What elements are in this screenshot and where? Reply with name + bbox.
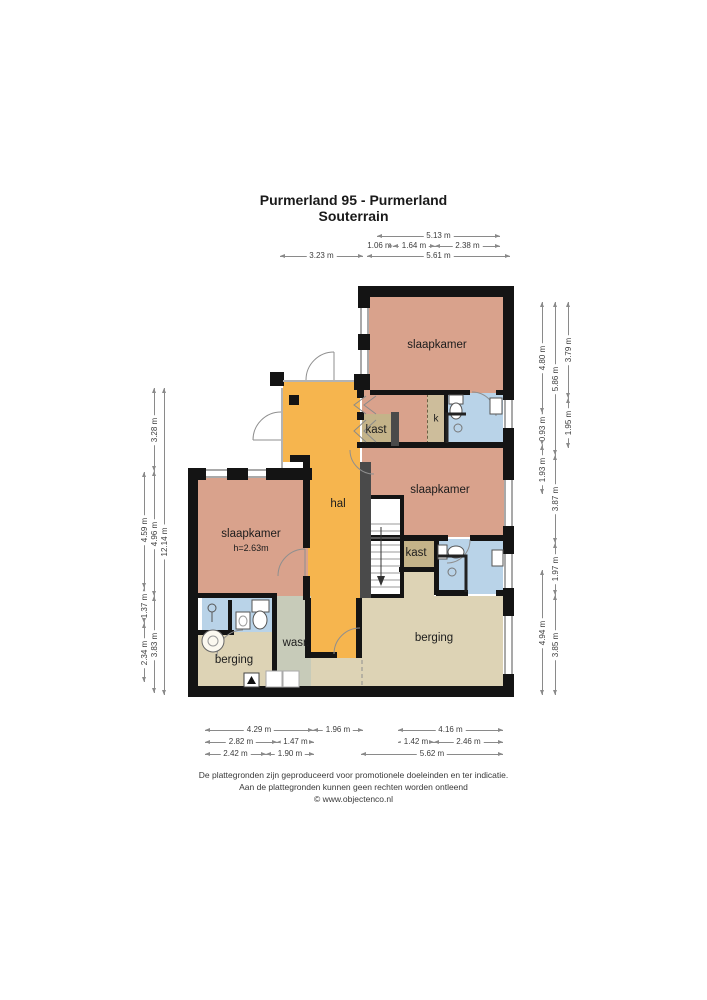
window	[206, 469, 227, 478]
dimension-label: 5.62 m	[417, 749, 447, 759]
dimension-line: 0.93 m	[542, 413, 543, 445]
dimension-line: 2.38 m	[435, 246, 500, 247]
dimension-label: 1.96 m	[323, 725, 353, 735]
dimension-label: 3.23 m	[306, 251, 336, 261]
dimension-label: 1.42 m	[401, 737, 431, 747]
room-label-hall: hal	[330, 498, 345, 510]
glass-wall	[283, 380, 354, 382]
wall-stairs	[371, 495, 404, 499]
wall-post	[354, 374, 370, 390]
dimension-label: 1.06 m	[364, 241, 394, 251]
dimension-line: 1.97 m	[555, 543, 556, 595]
floorplan-page: Purmerland 95 - Purmerland Souterrain	[0, 0, 707, 1000]
dimension-line: 1.42 m	[398, 742, 434, 743]
dimension-label: 5.13 m	[423, 231, 453, 241]
dimension-label: 5.86 m	[551, 363, 561, 393]
wall-int	[399, 567, 434, 572]
room-label-bedroom-mid: slaapkamer	[410, 484, 469, 496]
wall-int	[198, 630, 234, 635]
dimension-line: 1.37 m	[144, 588, 145, 623]
wall-int	[290, 455, 310, 462]
wall-int	[357, 390, 364, 398]
dimension-label: 2.46 m	[453, 737, 483, 747]
wall-int	[357, 412, 364, 420]
window	[248, 469, 266, 478]
room-hall-upper	[283, 381, 360, 462]
copyright: © www.objectenco.nl	[0, 794, 707, 804]
room-label-closet-right: kast	[405, 547, 426, 559]
room-label-bedroom-left: slaapkamer	[221, 528, 280, 540]
page-title: Purmerland 95 - Purmerland	[0, 192, 707, 208]
dimension-line: 4.29 m	[205, 730, 313, 731]
wall-stairs	[400, 497, 404, 598]
wall-int	[403, 442, 504, 448]
wall-int	[444, 393, 448, 443]
wall-right	[503, 526, 514, 554]
window	[504, 554, 513, 588]
wall-bottom	[188, 686, 514, 697]
dimension-line: 3.23 m	[280, 256, 363, 257]
door-arc-hall-top	[306, 352, 334, 380]
room-label-closet-mid: kast	[365, 424, 386, 436]
dimension-label: 4.29 m	[244, 725, 274, 735]
dimension-line: 2.46 m	[434, 742, 503, 743]
dimension-label: 3.85 m	[551, 630, 561, 660]
wall-int	[470, 535, 504, 541]
dimension-label: 1.97 m	[551, 554, 561, 584]
dimension-label: 5.61 m	[423, 251, 453, 261]
room-label-laundry: wasr.	[283, 637, 310, 649]
wall-int	[198, 593, 272, 598]
dimension-line: 4.59 m	[144, 472, 145, 588]
dimension-label: 4.59 m	[140, 515, 150, 545]
dimension-line: 4.16 m	[398, 730, 503, 731]
wall-left	[188, 468, 198, 697]
dimension-line: 3.83 m	[154, 596, 155, 693]
room-label-closet-k: k	[434, 414, 439, 425]
disclaimer-line2: Aan de plattegronden kunnen geen rechten…	[0, 782, 707, 792]
dimension-line: 12.14 m	[164, 388, 165, 695]
disclaimer-line1: De plattegronden zijn geproduceerd voor …	[0, 770, 707, 780]
wall-int	[305, 598, 311, 658]
dimension-line: 1.96 m	[313, 730, 363, 731]
room-bathroom-right	[436, 539, 503, 594]
dimension-label: 3.87 m	[551, 484, 561, 514]
dimension-line: 4.80 m	[542, 302, 543, 413]
door-arc-hall-left	[253, 412, 281, 440]
dimension-label: 1.37 m	[140, 590, 150, 620]
dimension-line: 5.61 m	[367, 256, 510, 257]
dimension-label: 3.28 m	[150, 414, 160, 444]
dimension-line: 2.42 m	[205, 754, 266, 755]
room-storage-right-notch	[402, 570, 434, 598]
wall-stairs	[371, 594, 404, 598]
dimension-line: 1.93 m	[542, 445, 543, 494]
glass-wall	[281, 388, 283, 468]
staircase	[371, 497, 400, 598]
dimension-line: 3.79 m	[568, 302, 569, 398]
dimension-label: 1.47 m	[280, 737, 310, 747]
dimension-line: 3.28 m	[154, 388, 155, 471]
wall-right	[503, 588, 514, 616]
dimension-label: 2.34 m	[140, 637, 150, 667]
dimension-label: 4.96 m	[150, 518, 160, 548]
wall-int	[303, 576, 310, 600]
wall-post	[270, 372, 284, 386]
dimension-label: 12.14 m	[160, 524, 170, 559]
dimension-label: 2.82 m	[226, 737, 256, 747]
room-label-storage-right: berging	[415, 632, 453, 644]
wall-top	[358, 286, 514, 297]
room-hall-column	[308, 462, 360, 658]
window	[360, 308, 369, 334]
room-label-ceiling-height: h=2.63m	[233, 543, 268, 553]
dimension-line: 5.86 m	[555, 302, 556, 455]
wall-int	[303, 455, 310, 548]
dimension-label: 1.64 m	[399, 241, 429, 251]
wall-int	[305, 652, 337, 658]
dimension-line: 5.62 m	[361, 754, 503, 755]
dimension-label: 2.42 m	[220, 749, 250, 759]
room-storage-strip	[311, 658, 362, 687]
room-bathroom-left	[202, 598, 272, 632]
wall-int	[370, 390, 470, 395]
dimension-line: 3.87 m	[555, 455, 556, 543]
room-label-storage-left: berging	[215, 654, 253, 666]
wall-stairs	[360, 462, 371, 598]
wall-right	[503, 428, 514, 480]
dimension-label: 0.93 m	[538, 414, 548, 444]
wall-wing-left	[358, 334, 370, 350]
dimension-label: 3.79 m	[564, 335, 574, 365]
dimension-line: 4.94 m	[542, 570, 543, 695]
dimension-label: 1.90 m	[275, 749, 305, 759]
column-post	[289, 395, 299, 405]
dimension-label: 4.80 m	[538, 342, 548, 372]
wall-int	[496, 390, 503, 395]
room-label-bedroom-top: slaapkamer	[407, 339, 466, 351]
room-bathroom-top	[445, 393, 503, 443]
wall-int	[496, 590, 504, 596]
page-subtitle: Souterrain	[0, 208, 707, 224]
dimension-label: 4.94 m	[538, 617, 548, 647]
dimension-line: 1.06 m	[366, 246, 393, 247]
dimension-label: 2.38 m	[452, 241, 482, 251]
dimension-line: 1.47 m	[277, 742, 314, 743]
wall-int	[434, 539, 439, 595]
window	[504, 616, 513, 674]
dimension-line: 5.13 m	[377, 236, 500, 237]
dimension-line: 4.96 m	[154, 471, 155, 596]
dimension-line: 1.90 m	[266, 754, 314, 755]
window	[504, 400, 513, 428]
dimension-label: 4.16 m	[435, 725, 465, 735]
wall-wing-left	[358, 286, 370, 308]
dimension-label: 3.83 m	[150, 629, 160, 659]
wall-int	[356, 598, 362, 658]
wall-int	[436, 590, 468, 596]
wall-top-left-wing	[227, 468, 248, 480]
dimension-line: 1.95 m	[568, 398, 569, 448]
dimension-label: 1.95 m	[564, 408, 574, 438]
wall-shower	[228, 600, 232, 630]
wall-top-left-wing	[188, 468, 206, 480]
wall-closet	[391, 412, 399, 446]
dimension-line: 1.64 m	[393, 246, 435, 247]
dimension-label: 1.93 m	[538, 454, 548, 484]
wall-right	[503, 286, 514, 400]
window	[504, 480, 513, 526]
dimension-line: 2.34 m	[144, 623, 145, 682]
dimension-line: 2.82 m	[205, 742, 277, 743]
dimension-line: 3.85 m	[555, 595, 556, 695]
window	[360, 350, 369, 374]
wall-int	[272, 593, 277, 687]
